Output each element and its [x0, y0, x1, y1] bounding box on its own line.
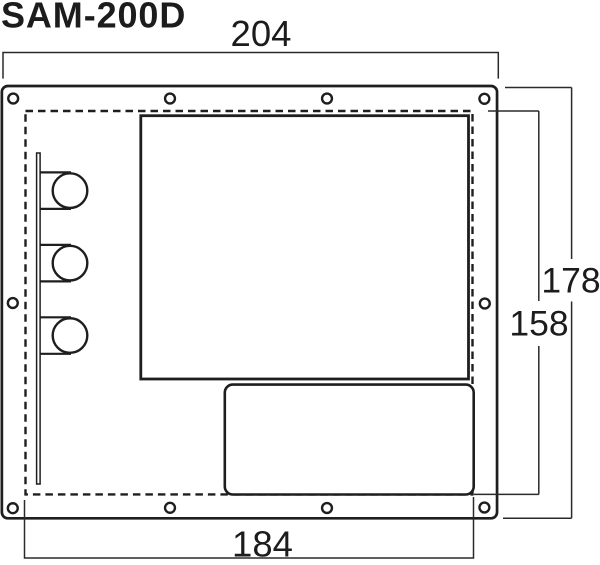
svg-text:SAM-200D: SAM-200D [1, 0, 186, 36]
svg-text:184: 184 [232, 524, 293, 565]
svg-text:178: 178 [541, 261, 600, 301]
svg-text:204: 204 [231, 13, 292, 54]
svg-text:158: 158 [509, 304, 568, 344]
